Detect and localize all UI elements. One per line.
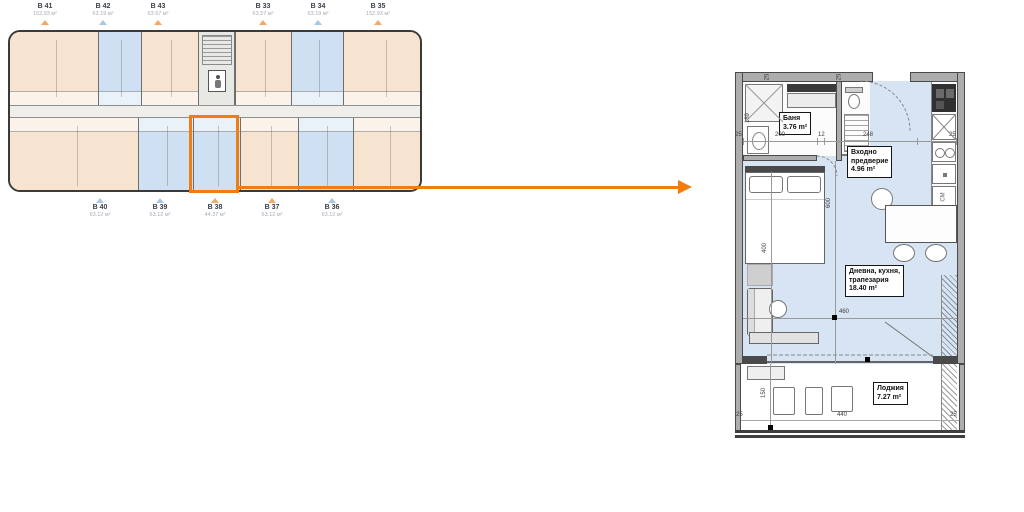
toilet-icon xyxy=(848,94,860,109)
loggia-chair xyxy=(831,386,853,412)
kitchen-drawer xyxy=(932,164,956,184)
armchair xyxy=(747,264,773,286)
unit-block-b35-wrap[interactable] xyxy=(353,118,422,192)
wall-top-left xyxy=(735,72,873,82)
unit-wet-band xyxy=(299,118,353,132)
dim-line xyxy=(771,172,772,364)
unit-label-b39[interactable]: B 3963.12 м² xyxy=(132,196,188,219)
unit-wet-band xyxy=(241,118,298,132)
dining-table xyxy=(885,205,957,243)
unit-wet-band xyxy=(99,91,141,105)
dining-chair xyxy=(925,244,947,262)
washbasin xyxy=(747,126,769,154)
dim-line xyxy=(835,161,836,364)
unit-block-b40[interactable] xyxy=(10,118,138,192)
staircase xyxy=(202,35,232,65)
unit-block-b43[interactable] xyxy=(141,32,198,105)
room-label-entry: Входно предверие 4.96 m² xyxy=(847,146,892,178)
callout-arrow-head-icon xyxy=(678,180,692,194)
highlight-box-b38[interactable] xyxy=(189,115,239,193)
wall-right xyxy=(957,72,965,364)
unit-block-b33[interactable] xyxy=(235,32,291,105)
sliding-glass-door xyxy=(767,361,933,363)
dim-tick xyxy=(817,138,818,145)
wall-loggia-left xyxy=(735,364,741,434)
unit-marker-icon xyxy=(259,20,267,25)
bathroom-cabinet xyxy=(787,84,836,92)
unit-label-b34[interactable]: B 3463.19 м² xyxy=(290,2,346,25)
unit-wet-band xyxy=(292,91,343,105)
toilet-tank xyxy=(845,87,863,93)
unit-label-b43[interactable]: B 4363.57 м² xyxy=(130,2,186,25)
unit-label-b40[interactable]: B 4063.12 м² xyxy=(72,196,128,219)
dim-line xyxy=(770,364,771,426)
unit-block-b41[interactable] xyxy=(10,32,98,105)
unit-marker-icon xyxy=(99,20,107,25)
unit-wet-band xyxy=(10,91,98,105)
unit-wet-band xyxy=(236,91,291,105)
unit-label-b35[interactable]: B 35152.93 м² xyxy=(350,2,406,25)
unit-label-b38[interactable]: B 3844.37 м² xyxy=(187,196,243,219)
dim-node xyxy=(768,425,773,430)
dining-chair xyxy=(893,244,915,262)
slide-door-stub-right xyxy=(933,356,957,364)
unit-label-b33[interactable]: B 3363.57 м² xyxy=(235,2,291,25)
unit-label-b36[interactable]: B 3663.12 м² xyxy=(304,196,360,219)
unit-marker-icon xyxy=(41,20,49,25)
unit-wet-band xyxy=(344,91,422,105)
unit-block-b39[interactable] xyxy=(138,118,193,192)
dim-tick xyxy=(743,138,744,145)
privacy-screen-hatch xyxy=(941,275,957,432)
stove xyxy=(932,84,956,112)
dim-tick xyxy=(917,138,918,145)
wall-bathroom-right xyxy=(836,81,842,161)
dim-node xyxy=(865,357,870,362)
dim-node xyxy=(832,315,837,320)
stair-core xyxy=(198,32,235,105)
elevator-icon xyxy=(208,70,226,92)
unit-block-b35[interactable] xyxy=(343,32,422,105)
loggia-table xyxy=(805,387,823,415)
pillow xyxy=(749,176,783,193)
slide-door-stub-left xyxy=(743,356,767,364)
detail-plan-b38: СМ Баня 3.76 m² Входно предверие 4.96 m²… xyxy=(735,60,965,447)
callout-arrow xyxy=(239,186,678,189)
tv-cabinet xyxy=(749,332,819,344)
vanity xyxy=(787,93,836,108)
unit-label-b41[interactable]: B 41152.93 м² xyxy=(17,2,73,25)
loggia-chair xyxy=(773,387,795,415)
unit-wet-band xyxy=(139,118,193,132)
loggia-cabinet xyxy=(747,366,785,380)
unit-marker-icon xyxy=(314,20,322,25)
unit-block-b36[interactable] xyxy=(298,118,353,192)
dim-line xyxy=(743,318,957,319)
loggia-railing xyxy=(735,430,965,438)
wall-bathroom-bottom xyxy=(743,155,817,161)
dim-line xyxy=(741,420,959,421)
unit-label-b37[interactable]: B 3763.12 м² xyxy=(244,196,300,219)
pillow xyxy=(787,176,821,193)
room-label-loggia: Лоджия 7.27 m² xyxy=(873,382,908,405)
kitchen-sink xyxy=(932,142,956,162)
unit-label-b42[interactable]: B 4263.19 м² xyxy=(75,2,131,25)
dim-tick xyxy=(824,138,825,145)
wall-loggia-right xyxy=(959,364,965,434)
wall-left xyxy=(735,72,743,364)
unit-marker-icon xyxy=(374,20,382,25)
unit-wet-band xyxy=(354,118,422,132)
unit-block-b34[interactable] xyxy=(291,32,343,105)
room-label-living: Дневна, кухня, трапезария 18.40 m² xyxy=(845,265,904,297)
dim-tick xyxy=(956,138,957,145)
unit-wet-band xyxy=(142,91,198,105)
unit-wet-band xyxy=(10,118,138,132)
unit-block-b37[interactable] xyxy=(240,118,298,192)
unit-marker-icon xyxy=(154,20,162,25)
dim-line xyxy=(743,141,957,142)
unit-block-b42[interactable] xyxy=(98,32,141,105)
